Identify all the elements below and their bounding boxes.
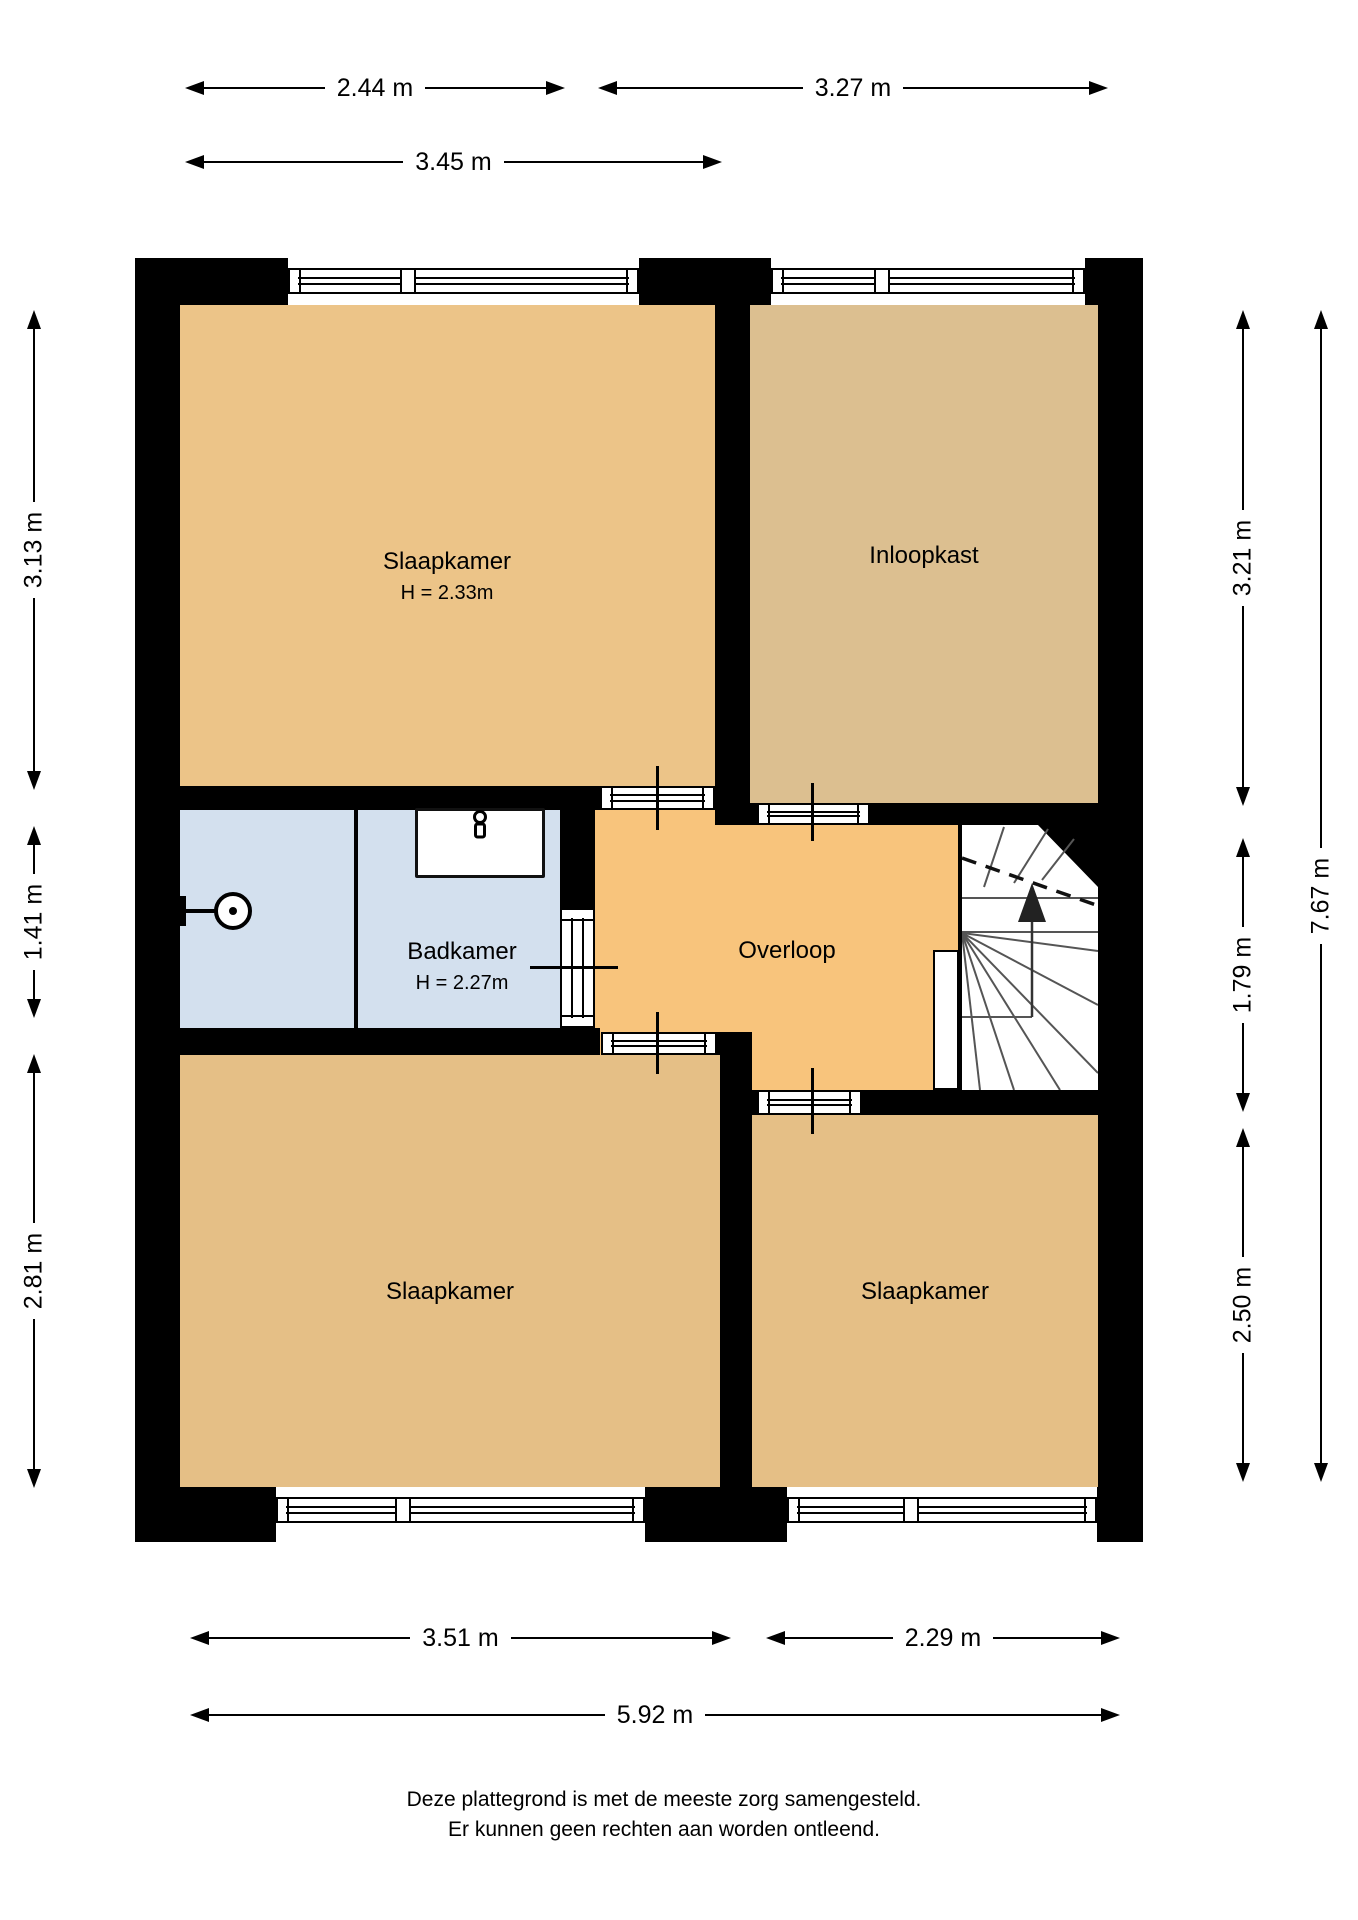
glass-line <box>767 1099 852 1101</box>
frame-post <box>1072 270 1074 292</box>
dim-line <box>1242 329 1245 510</box>
dim-label-text: 1.41 m <box>20 884 49 960</box>
frame-post <box>1084 1499 1086 1521</box>
dim-line <box>705 1714 1101 1717</box>
dim-room-2-29: 2.29 m <box>766 1626 1120 1650</box>
frame-post <box>562 1015 593 1017</box>
dim-right-3-21: 3.21 m <box>1231 310 1255 806</box>
dim-label: 1.79 m <box>1231 927 1255 1023</box>
dim-line <box>209 1714 605 1717</box>
floorplan-canvas: SlaapkamerH = 2.33mInloopkastBadkamerH =… <box>0 0 1358 1920</box>
window-bottom-left <box>276 1497 645 1523</box>
dim-line <box>785 1637 893 1640</box>
frame-post <box>626 270 628 292</box>
mullion <box>888 270 890 292</box>
mullion-gap <box>397 1499 409 1521</box>
shower-head-icon <box>175 885 257 937</box>
dim-line <box>425 87 546 90</box>
dim-label: 1.41 m <box>22 874 46 970</box>
arrowhead-right-icon <box>1101 1631 1120 1645</box>
frame-post <box>768 805 770 823</box>
door-tick <box>656 766 659 830</box>
dim-line <box>33 329 36 502</box>
frame-post <box>562 919 593 921</box>
wall-tl-bottom <box>180 786 600 810</box>
room-name: Slaapkamer <box>861 1275 989 1309</box>
dim-window-2-44: 2.44 m <box>185 76 565 100</box>
door-tick <box>656 1012 659 1074</box>
dim-line <box>33 598 36 771</box>
stair-railing <box>933 950 959 1090</box>
glass-line <box>286 1506 635 1508</box>
glass-line <box>781 283 1075 285</box>
dim-line <box>33 970 36 999</box>
dim-room-3-51: 3.51 m <box>190 1626 731 1650</box>
dim-window-3-27: 3.27 m <box>598 76 1108 100</box>
window-top-left <box>288 268 639 294</box>
arrowhead-left-icon <box>190 1708 209 1722</box>
room-name: Inloopkast <box>869 539 978 573</box>
glass-line <box>298 283 629 285</box>
dim-line <box>33 845 36 874</box>
door-tick <box>530 966 618 969</box>
dim-line <box>204 161 403 164</box>
room-height: H = 2.27m <box>407 969 516 997</box>
glass-line <box>767 1104 852 1106</box>
arrowhead-down-icon <box>1236 1463 1250 1482</box>
dim-line <box>511 1637 712 1640</box>
arrowhead-left-icon <box>598 81 617 95</box>
dim-line <box>504 161 703 164</box>
arrowhead-right-icon <box>546 81 565 95</box>
arrowhead-right-icon <box>712 1631 731 1645</box>
room-name: Badkamer <box>407 935 516 969</box>
frame-post <box>857 805 859 823</box>
wall-inloopkast-bottom <box>870 803 1098 825</box>
room-name: Slaapkamer <box>386 1275 514 1309</box>
room-slaapkamer-bl-label: Slaapkamer <box>386 1275 514 1309</box>
dim-label: 3.27 m <box>803 74 903 103</box>
door-tick <box>811 783 814 841</box>
dim-label: 3.13 m <box>22 502 46 598</box>
glass-line <box>286 1512 635 1514</box>
wall-shower-divider <box>354 810 358 1028</box>
wall-bottom-pier <box>645 1487 787 1542</box>
wall-bottom-corner-right <box>1097 1487 1143 1542</box>
dim-label: 2.50 m <box>1231 1257 1255 1353</box>
arrowhead-down-icon <box>27 771 41 790</box>
glass-line <box>797 1512 1087 1514</box>
dim-right-2-50: 2.50 m <box>1231 1128 1255 1482</box>
wall-right <box>1098 258 1143 1532</box>
dim-left-2-81: 2.81 m <box>22 1054 46 1488</box>
disclaimer-line-2: Er kunnen geen rechten aan worden ontlee… <box>135 1818 1193 1842</box>
dim-line <box>1242 857 1245 927</box>
glass-line <box>611 1045 707 1047</box>
dim-label-text: 3.21 m <box>1229 520 1258 596</box>
frame-post <box>287 1499 289 1521</box>
frame-post <box>611 788 613 808</box>
dim-line <box>33 1319 36 1469</box>
wall-corner-bl <box>717 1032 752 1055</box>
mullion-gap <box>876 270 888 292</box>
wall-mid-vertical <box>715 305 750 825</box>
room-slaapkamer-br-label: Slaapkamer <box>861 1275 989 1309</box>
dim-total-5-92: 5.92 m <box>190 1703 1120 1727</box>
dim-label: 2.81 m <box>22 1223 46 1319</box>
frame-post <box>612 1034 614 1053</box>
dim-label-text: 1.79 m <box>1229 937 1258 1013</box>
door-slaapkamer-br <box>757 1090 862 1115</box>
dim-line <box>1242 1353 1245 1463</box>
arrowhead-left-icon <box>190 1631 209 1645</box>
arrowhead-down-icon <box>1236 1093 1250 1112</box>
arrowhead-left-icon <box>185 81 204 95</box>
arrowhead-left-icon <box>766 1631 785 1645</box>
mullion <box>917 1499 919 1521</box>
dim-label: 5.92 m <box>605 1701 705 1730</box>
wall-top-corner-left <box>135 258 288 305</box>
room-overloop-label: Overloop <box>738 934 835 968</box>
glass-line <box>298 277 629 279</box>
arrowhead-up-icon <box>1236 1128 1250 1147</box>
frame-post <box>768 1092 770 1113</box>
dim-line <box>204 87 325 90</box>
dim-line <box>33 1073 36 1223</box>
frame-post <box>849 1092 851 1113</box>
arrowhead-down-icon <box>1314 1463 1328 1482</box>
room-badkamer-label: BadkamerH = 2.27m <box>407 935 516 997</box>
dim-room-3-45: 3.45 m <box>185 150 722 174</box>
door-slaapkamer-bl <box>601 1032 717 1055</box>
dim-line <box>1320 944 1323 1463</box>
glass-line <box>611 1040 707 1042</box>
arrowhead-down-icon <box>27 999 41 1018</box>
arrowhead-right-icon <box>1089 81 1108 95</box>
dim-label-text: 2.81 m <box>20 1233 49 1309</box>
dim-label: 2.44 m <box>325 74 425 103</box>
dim-left-3-13: 3.13 m <box>22 310 46 790</box>
arrowhead-down-icon <box>1236 787 1250 806</box>
dim-line <box>993 1637 1101 1640</box>
dim-label: 3.51 m <box>410 1624 510 1653</box>
dim-right-1-79: 1.79 m <box>1231 838 1255 1112</box>
dim-left-1-41: 1.41 m <box>22 826 46 1018</box>
dim-label: 3.21 m <box>1231 510 1255 606</box>
dim-line <box>903 87 1089 90</box>
frame-post <box>798 1499 800 1521</box>
dim-line <box>1320 329 1323 848</box>
mullion-gap <box>905 1499 917 1521</box>
arrowhead-right-icon <box>1101 1708 1120 1722</box>
wall-badkamer-bottom <box>180 1028 600 1055</box>
arrowhead-down-icon <box>27 1469 41 1488</box>
window-bottom-right <box>787 1497 1097 1523</box>
wall-left <box>135 258 180 1532</box>
dim-total-7-67: 7.67 m <box>1309 310 1333 1482</box>
frame-post <box>704 1034 706 1053</box>
room-slaapkamer-bl <box>180 1055 720 1487</box>
wall-bottom-vertical <box>720 1055 752 1487</box>
mullion <box>414 270 416 292</box>
dim-label: 7.67 m <box>1309 848 1333 944</box>
wall-top-corner-right <box>1085 258 1143 305</box>
arrowhead-right-icon <box>703 155 722 169</box>
faucet-icon <box>464 806 496 844</box>
arrowhead-up-icon <box>27 310 41 329</box>
arrowhead-left-icon <box>185 155 204 169</box>
mullion-gap <box>402 270 414 292</box>
arrowhead-up-icon <box>1236 838 1250 857</box>
disclaimer-line-1: Deze plattegrond is met de meeste zorg s… <box>135 1788 1193 1812</box>
frame-post <box>702 788 704 808</box>
dim-line <box>1242 606 1245 787</box>
dim-line <box>617 87 803 90</box>
frame-post <box>632 1499 634 1521</box>
room-height: H = 2.33m <box>383 579 511 607</box>
mullion <box>409 1499 411 1521</box>
arrowhead-up-icon <box>1236 310 1250 329</box>
wall-bottom-corner-left <box>135 1487 276 1542</box>
wall-badkamer-right-top <box>560 810 595 908</box>
wall-top-pier <box>639 258 771 305</box>
room-inloopkast-label: Inloopkast <box>869 539 978 573</box>
arrowhead-up-icon <box>27 826 41 845</box>
room-slaapkamer-tl-label: SlaapkamerH = 2.33m <box>383 545 511 607</box>
arrowhead-up-icon <box>27 1054 41 1073</box>
room-name: Overloop <box>738 934 835 968</box>
door-tick <box>811 1068 814 1134</box>
dim-label-text: 7.67 m <box>1307 858 1336 934</box>
dim-label: 2.29 m <box>893 1624 993 1653</box>
dim-label-text: 2.50 m <box>1229 1267 1258 1343</box>
dim-line <box>1242 1147 1245 1257</box>
arrowhead-up-icon <box>1314 310 1328 329</box>
dim-label-text: 3.13 m <box>20 512 49 588</box>
staircase <box>962 825 1098 1090</box>
window-top-right <box>771 268 1085 294</box>
frame-post <box>299 270 301 292</box>
room-name: Slaapkamer <box>383 545 511 579</box>
dim-label: 3.45 m <box>403 148 503 177</box>
dim-line <box>209 1637 410 1640</box>
wall-overloop-br <box>862 1090 1098 1115</box>
glass-line <box>797 1506 1087 1508</box>
frame-post <box>782 270 784 292</box>
glass-line <box>781 277 1075 279</box>
dim-line <box>1242 1023 1245 1093</box>
